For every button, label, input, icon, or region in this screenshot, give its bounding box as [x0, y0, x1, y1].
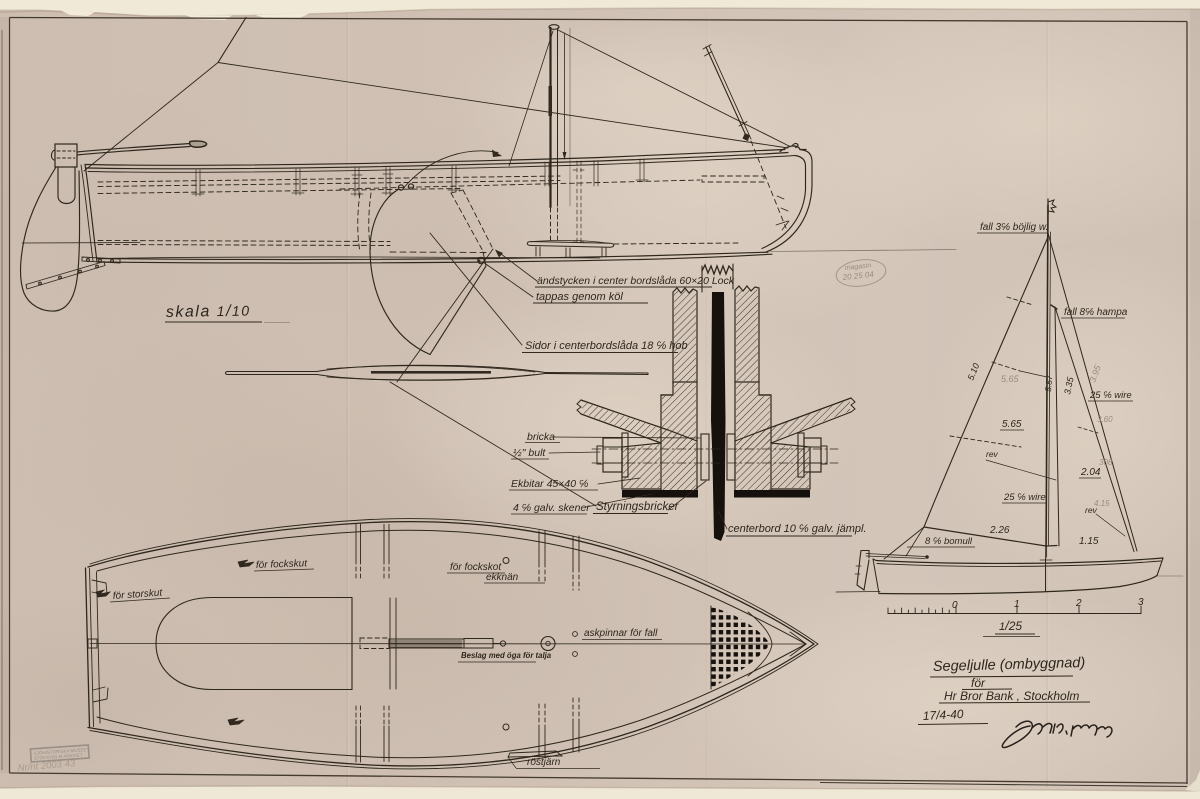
svg-text:rev: rev — [986, 449, 999, 459]
svg-text:för: för — [971, 676, 986, 690]
svg-text:2.04: 2.04 — [1080, 467, 1101, 478]
svg-text:5.57: 5.57 — [1043, 375, 1054, 393]
svg-text:25 ℅ wire: 25 ℅ wire — [1089, 390, 1132, 401]
svg-text:tappas genom köl: tappas genom köl — [536, 291, 623, 303]
svg-text:5.65: 5.65 — [1002, 419, 1022, 430]
svg-text:centerbord 10 ℅ galv. jämpl.: centerbord 10 ℅ galv. jämpl. — [728, 523, 867, 535]
svg-text:askpinnar för fall: askpinnar för fall — [584, 628, 658, 639]
svg-text:4.15: 4.15 — [1094, 499, 1110, 508]
svg-text:ekknän: ekknän — [486, 572, 519, 583]
svg-text:25 ℅ wire: 25 ℅ wire — [1003, 492, 1046, 503]
svg-text:Sidor i centerbordslåda 18 ℅ h: Sidor i centerbordslåda 18 ℅ hob — [525, 340, 688, 352]
svg-text:3.60: 3.60 — [1097, 415, 1113, 424]
svg-text:17/4-40: 17/4-40 — [922, 707, 964, 723]
svg-text:2: 2 — [1075, 598, 1082, 609]
svg-text:bricka: bricka — [527, 431, 555, 443]
svg-text:fall 8℅ hampa: fall 8℅ hampa — [1064, 307, 1128, 318]
svg-text:Beslag med öga för talja: Beslag med öga för talja — [461, 651, 552, 660]
svg-text:ändstycken i center bordslåda: ändstycken i center bordslåda 60×20 Lock — [537, 275, 735, 287]
svg-text:3: 3 — [1138, 597, 1144, 608]
svg-text:8 ℅ bomull: 8 ℅ bomull — [925, 536, 973, 547]
svg-text:skala 1/10: skala 1/10 — [166, 303, 251, 321]
svg-text:röstjärn: röstjärn — [527, 757, 561, 768]
svg-text:0: 0 — [952, 600, 958, 611]
svg-text:Hr Bror Bank , Stockholm: Hr Bror Bank , Stockholm — [944, 689, 1079, 703]
svg-text:fall 3℅ böjlig w.: fall 3℅ böjlig w. — [980, 222, 1048, 233]
svg-text:5.65: 5.65 — [1001, 374, 1020, 384]
svg-text:1: 1 — [1014, 599, 1020, 610]
svg-text:1.15: 1.15 — [1079, 536, 1099, 547]
svg-text:308: 308 — [1099, 458, 1113, 467]
svg-text:Styrningsbricker: Styrningsbricker — [596, 501, 680, 513]
svg-text:2.26: 2.26 — [989, 525, 1010, 536]
svg-text:Ekbitar 45×40 ℅: Ekbitar 45×40 ℅ — [511, 478, 588, 490]
svg-text:4 ℅ galv. skener: 4 ℅ galv. skener — [513, 502, 590, 514]
svg-text:½" bult: ½" bult — [513, 447, 546, 459]
svg-text:1/25: 1/25 — [999, 618, 1022, 633]
